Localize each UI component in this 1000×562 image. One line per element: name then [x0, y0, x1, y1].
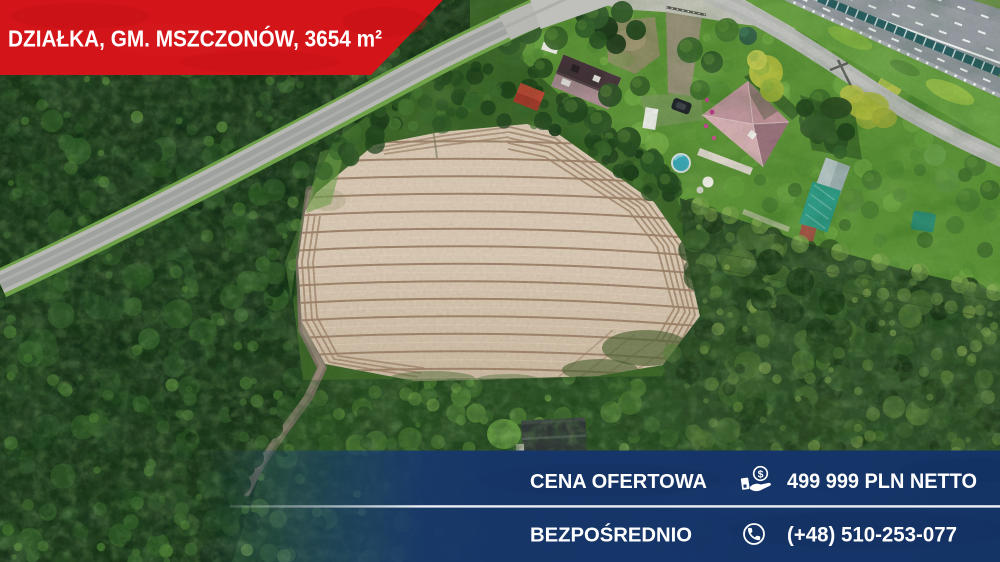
- svg-text:BEZPOŚREDNIO: BEZPOŚREDNIO: [530, 523, 692, 547]
- svg-text:499 999 PLN NETTO: 499 999 PLN NETTO: [787, 470, 977, 493]
- svg-text:DZIAŁKA, GM. MSZCZONÓW, 3654 m: DZIAŁKA, GM. MSZCZONÓW, 3654 m²: [8, 25, 382, 52]
- svg-text:$: $: [758, 469, 764, 481]
- svg-text:CENA OFERTOWA: CENA OFERTOWA: [530, 470, 707, 493]
- svg-text:(+48) 510-253-077: (+48) 510-253-077: [787, 524, 957, 547]
